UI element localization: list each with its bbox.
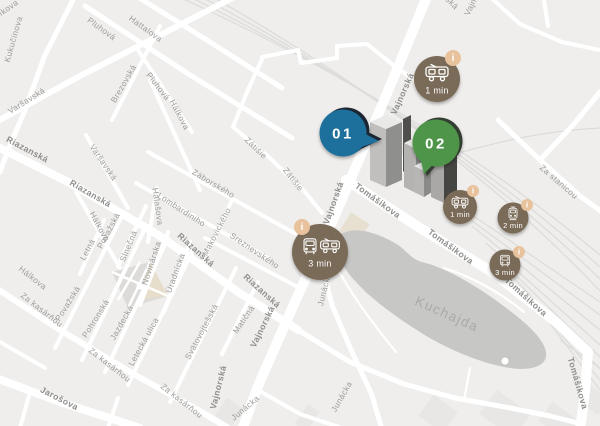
map[interactable]: Kuchajda íkovaKukučínovaVaršavskáPluhová… (0, 0, 600, 426)
street-label: Jarošova (39, 384, 80, 412)
markers-layer: 1 min i 1 min i 2 min i (292, 50, 533, 281)
transit-marker-1[interactable]: 1 min i (414, 50, 461, 102)
street-label: Úradnícka (163, 252, 187, 294)
info-badge[interactable]: i (294, 219, 310, 235)
street-label: Matičná (230, 303, 256, 335)
svg-text:i: i (301, 222, 304, 233)
transit-marker-3[interactable]: 2 min i (498, 199, 534, 234)
street-label: Varšavská (6, 85, 47, 116)
svg-text:2 min: 2 min (503, 221, 523, 230)
street-label: Svätovojtešská (183, 302, 221, 361)
street-label: Vajnorská (208, 364, 229, 410)
street-label: Junácka (229, 393, 261, 422)
street-label: Kukučínova (2, 15, 25, 63)
street-label: Tomášikova (503, 275, 550, 318)
street-label: Junácka (329, 379, 355, 413)
street-label: Jazdecká (108, 303, 135, 341)
street-label: Hattalova (127, 13, 164, 44)
svg-text:i: i (452, 53, 455, 64)
street-label: íkova (0, 0, 20, 18)
transit-marker-4[interactable]: 3 min i (490, 246, 526, 281)
street-label: Riazanská (5, 134, 50, 164)
street-label: Vajno (462, 0, 481, 17)
street-label: Zátišie (281, 165, 306, 193)
street-label: Tomášikova (566, 356, 590, 410)
street-label: Riazanská (68, 178, 113, 210)
svg-text:01: 01 (332, 126, 354, 143)
street-label: Pluhová (144, 70, 172, 102)
svg-text:1 min: 1 min (450, 210, 470, 219)
info-badge[interactable]: i (445, 50, 461, 66)
street-label: ská (444, 0, 461, 11)
street-label: Záborského (190, 167, 236, 200)
street-label: Vajnorská (321, 180, 346, 225)
street-label: Hálkova (17, 264, 49, 292)
street-label: Zátišie (243, 135, 270, 161)
street-label: Za kasárňou (87, 345, 133, 384)
svg-text:02: 02 (425, 136, 447, 153)
svg-text:i: i (518, 248, 520, 257)
svg-text:i: i (526, 201, 528, 210)
info-badge[interactable]: i (467, 185, 479, 197)
street-label: Pluhová (86, 15, 118, 42)
street-label: Pohronská (80, 297, 111, 339)
svg-text:3 min: 3 min (308, 259, 332, 269)
transit-marker-2[interactable]: 1 min i (443, 185, 479, 224)
street-label: Letná (78, 237, 98, 262)
street-label: Brezovská (108, 63, 138, 105)
property-marker-01[interactable]: 01 (320, 108, 383, 157)
street-label: Tomášikova (353, 181, 402, 221)
street-label: Varšavská (88, 142, 120, 182)
svg-text:3 min: 3 min (495, 268, 515, 277)
street-label: Sreznevského (228, 230, 281, 270)
street-label: Za stanicou (538, 162, 580, 201)
info-badge[interactable]: i (521, 199, 533, 211)
street-label: Za kasárňou (159, 381, 205, 420)
street-label: Hálkova (168, 98, 192, 132)
street-label: Slnečná (117, 229, 139, 263)
property-marker-02[interactable]: 02 (413, 118, 463, 177)
street-label: Vajnorská (389, 71, 416, 116)
svg-text:i: i (472, 187, 474, 196)
street-label: Letecká ulica (126, 316, 161, 368)
street-label: Tomášikova (426, 227, 475, 267)
transit-marker-5[interactable]: 3 min i (292, 219, 348, 280)
info-badge[interactable]: i (513, 246, 525, 258)
svg-text:1 min: 1 min (425, 86, 449, 96)
street-label: Novinárska (139, 240, 163, 286)
map-overlay: íkovaKukučínovaVaršavskáPluhováHattalova… (0, 0, 600, 426)
